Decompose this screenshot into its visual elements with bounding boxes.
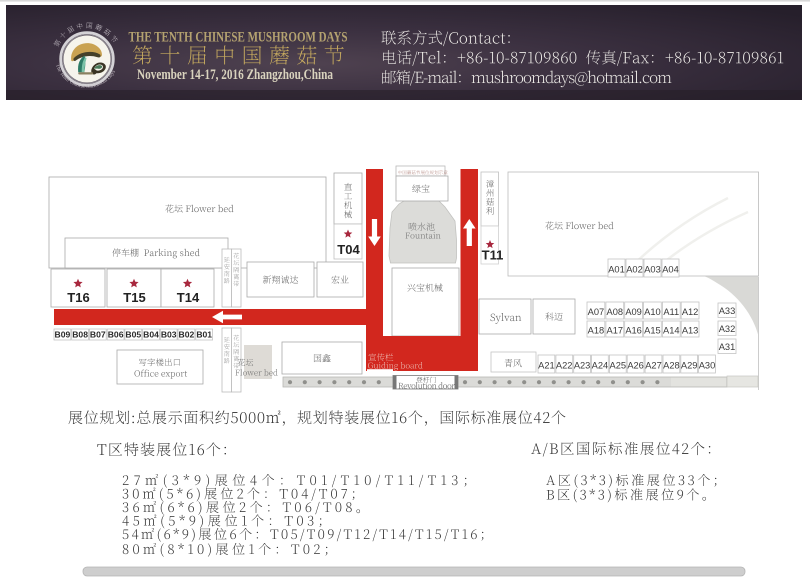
svg-text:B08: B08 [72,330,88,340]
svg-text:A11: A11 [663,307,679,317]
svg-text:A10: A10 [644,307,661,317]
svg-text:A02: A02 [626,265,643,275]
svg-text:A16: A16 [625,326,642,336]
svg-text:A22: A22 [556,361,573,371]
svg-text:THE TENTH CHINESE MUSHROOM DAY: THE TENTH CHINESE MUSHROOM DAYS [129,29,348,46]
svg-text:A03: A03 [644,265,661,275]
svg-text:A27: A27 [645,361,662,371]
svg-text:A01: A01 [608,265,625,275]
svg-text:B05: B05 [125,330,141,340]
svg-text:B06: B06 [108,330,124,340]
svg-text:A23: A23 [574,361,591,371]
svg-text:A21: A21 [538,361,555,371]
svg-text:A25: A25 [610,361,627,371]
svg-text:A18: A18 [588,326,605,336]
svg-text:A26: A26 [627,361,644,371]
svg-text:T11: T11 [482,248,504,263]
svg-text:B04: B04 [143,330,159,340]
svg-text:A24: A24 [592,361,609,371]
svg-text:B07: B07 [90,330,106,340]
svg-text:A28: A28 [663,361,680,371]
svg-text:A30: A30 [699,361,716,371]
svg-text:B02: B02 [179,330,195,340]
svg-text:A17: A17 [607,326,624,336]
svg-text:A15: A15 [644,326,661,336]
svg-text:A09: A09 [625,307,642,317]
svg-text:T04: T04 [337,242,360,257]
svg-text:A29: A29 [681,361,698,371]
svg-text:A14: A14 [663,326,680,336]
svg-text:A07: A07 [588,307,605,317]
svg-text:A31: A31 [719,342,736,352]
svg-text:T14: T14 [177,290,200,305]
svg-text:T16: T16 [67,290,89,305]
svg-text:A08: A08 [607,307,624,317]
svg-text:A33: A33 [719,306,736,316]
svg-text:T15: T15 [123,290,145,305]
svg-text:B03: B03 [161,330,177,340]
svg-text:A04: A04 [662,265,679,275]
svg-text:B01: B01 [196,330,212,340]
svg-text:A32: A32 [719,324,736,334]
svg-text:A12: A12 [682,307,699,317]
svg-text:B09: B09 [55,330,71,340]
svg-text:November 14-17, 2016 Zhangzho: November 14-17, 2016 Zhangzhou,China [137,67,333,83]
svg-text:A13: A13 [682,326,699,336]
